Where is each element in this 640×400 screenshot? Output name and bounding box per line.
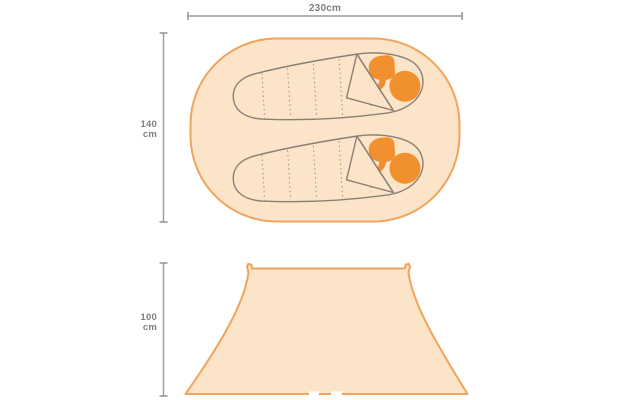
door-notch-right (331, 392, 342, 397)
depth-dimension: 140 cm (141, 33, 168, 222)
width-dimension: 230cm (188, 3, 462, 20)
height-dimension-unit: cm (143, 322, 157, 333)
door-notch-left (309, 392, 319, 397)
height-dimension: 100 cm (141, 263, 168, 396)
diagram-canvas: 230cm 140 cm 100 cm (0, 0, 640, 400)
tent-dimension-diagram: 230cm 140 cm 100 cm (0, 0, 640, 400)
tent-front-view (186, 264, 468, 397)
depth-dimension-unit: cm (143, 129, 157, 140)
width-dimension-label: 230cm (309, 3, 341, 14)
tent-front-shape (186, 264, 468, 394)
tent-top-view (191, 39, 460, 222)
